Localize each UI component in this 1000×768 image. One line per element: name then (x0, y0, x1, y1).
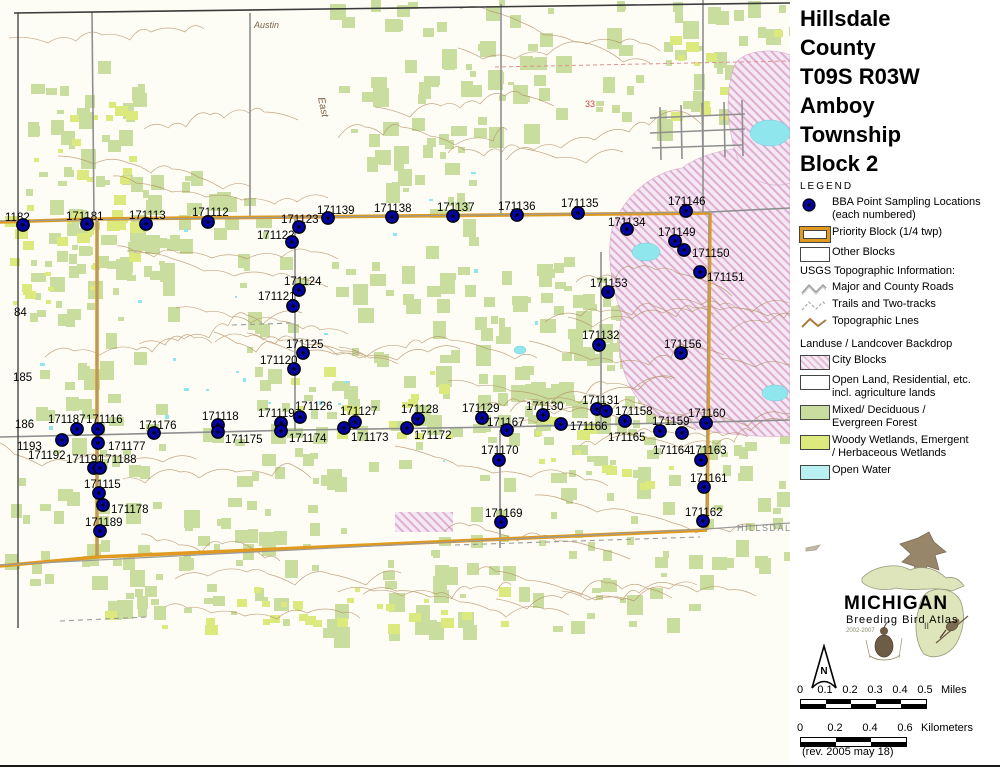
scale-tick: 0.5 (917, 684, 932, 696)
water-swatch (800, 464, 832, 480)
bba-point-label: 185 (13, 372, 32, 384)
scale-tick: 0 (797, 684, 803, 696)
legend-item-trails: Trails and Two-tracks (800, 298, 996, 313)
legend-item-water: Open Water (800, 464, 996, 480)
legend-item-label: Other Blocks (832, 246, 996, 259)
bba-point-label: 171172 (414, 430, 452, 442)
bba-point-label: 171174 (289, 433, 327, 445)
bba-point-label: 186 (15, 419, 34, 431)
legend-item-topolines: Topographic Lnes (800, 315, 996, 330)
upper-peninsula-shape (862, 566, 964, 591)
topo-line-icon (800, 315, 832, 330)
bba-point-label: 171177 (108, 441, 146, 453)
topo-map: AustinEastHILLSDAL3311821711811711131711… (0, 0, 790, 768)
bba-point-label: 84 (14, 307, 27, 319)
legend-sidebar: Hillsdale County T09S R03W Amboy Townshi… (790, 0, 1000, 768)
title-line: Block 2 (800, 149, 920, 178)
road-line-icon (800, 281, 832, 296)
revision-note: (rev. 2005 may 18) (802, 746, 894, 758)
quail-icon (866, 621, 902, 660)
title-line: Township (800, 120, 920, 149)
scale-tick: 0 (797, 722, 803, 734)
legend-item-label: Open Water (832, 464, 996, 477)
bba-point-label: 171127 (340, 406, 378, 418)
legend-heading: LEGEND (800, 181, 853, 192)
legend-item-city: City Blocks (800, 354, 996, 370)
legend-item-label: Woody Wetlands, Emergent/ Herbaceous Wet… (832, 434, 996, 460)
place-label: HILLSDAL (737, 523, 790, 533)
logo-numeral: II (924, 621, 929, 631)
legend-item-label: Open Land, Residential, etc.incl. agricu… (832, 374, 996, 400)
scale-tick: 0.1 (817, 684, 832, 696)
legend-item-priority-block: Priority Block (1/4 twp) (800, 226, 996, 242)
bba-point-label: 171166 (570, 421, 608, 433)
legend-item-other-blocks: Other Blocks (800, 246, 996, 262)
bba-point-label: 171116 (86, 414, 123, 426)
bba-point-label: 171150 (692, 248, 730, 260)
north-label: N (820, 666, 827, 677)
priority-block-swatch (800, 226, 832, 242)
title-line: Hillsdale (800, 4, 920, 33)
legend-item-wetland: Woody Wetlands, Emergent/ Herbaceous Wet… (800, 434, 996, 460)
scale-tick: 0.6 (897, 722, 912, 734)
frame-border (0, 765, 1000, 767)
title-line: Amboy (800, 91, 920, 120)
legend-item-forest: Mixed/ Deciduous /Evergreen Forest (800, 404, 996, 430)
place-label: Austin (253, 20, 279, 30)
legend-item-openland: Open Land, Residential, etc.incl. agricu… (800, 374, 996, 400)
legend-item-label: Major and County Roads (832, 281, 996, 294)
map-document: AustinEastHILLSDAL3311821711811711131711… (0, 0, 1000, 768)
wetland-swatch (800, 434, 832, 450)
bba-dot-icon (800, 196, 832, 213)
logo-years: 2002-2007 (846, 628, 875, 634)
map-canvas: AustinEastHILLSDAL3311821711811711131711… (0, 0, 790, 768)
scale-unit: Kilometers (921, 722, 973, 734)
title-line: County (800, 33, 920, 62)
legend-item-label: Topographic Lnes (832, 315, 996, 328)
page-title: Hillsdale County T09S R03W Amboy Townshi… (800, 4, 920, 178)
bba-point-label: 171192 (28, 450, 66, 462)
usgs-heading: USGS Topographic Information: (800, 265, 996, 278)
bba-point-label: 171173 (351, 432, 389, 444)
bba-point-label: 171163 (689, 445, 727, 457)
bba-point-label: 171178 (111, 504, 149, 516)
scalebar-miles: 00.10.20.30.40.5Miles (790, 684, 1000, 714)
scale-tick: 0.4 (862, 722, 877, 734)
landuse-heading: Landuse / Landcover Backdrop (800, 338, 996, 351)
bba-point-label: 171164 (653, 445, 691, 457)
bba-point-label: 171165 (608, 432, 646, 444)
other-blocks-swatch (800, 246, 832, 262)
legend-item-label: City Blocks (832, 354, 996, 367)
forest-swatch (800, 404, 832, 420)
scale-unit: Miles (941, 684, 967, 696)
city-swatch (800, 354, 832, 370)
logo-subtitle: Breeding Bird Atlas (846, 614, 959, 626)
place-label: 33 (585, 99, 595, 109)
title-line: T09S R03W (800, 62, 920, 91)
legend-item-label: Priority Block (1/4 twp) (832, 226, 996, 239)
legend-item-label: BBA Point Sampling Locations(each number… (832, 196, 996, 222)
scale-tick: 0.2 (842, 684, 857, 696)
legend-item-bba: BBA Point Sampling Locations(each number… (800, 196, 996, 222)
scale-bar (800, 699, 927, 709)
legend-item-label: Mixed/ Deciduous /Evergreen Forest (832, 404, 996, 430)
legend-item-label: Trails and Two-tracks (832, 298, 996, 311)
openland-swatch (800, 374, 832, 390)
logo-name: MICHIGAN (844, 593, 948, 614)
bba-point-label: 171151 (707, 272, 745, 284)
scale-tick: 0.2 (827, 722, 842, 734)
scale-tick: 0.4 (892, 684, 907, 696)
scale-tick: 0.3 (867, 684, 882, 696)
bba-point-label: 171175 (225, 434, 263, 446)
legend-item-roads: Major and County Roads (800, 281, 996, 296)
trail-line-icon (800, 298, 832, 313)
